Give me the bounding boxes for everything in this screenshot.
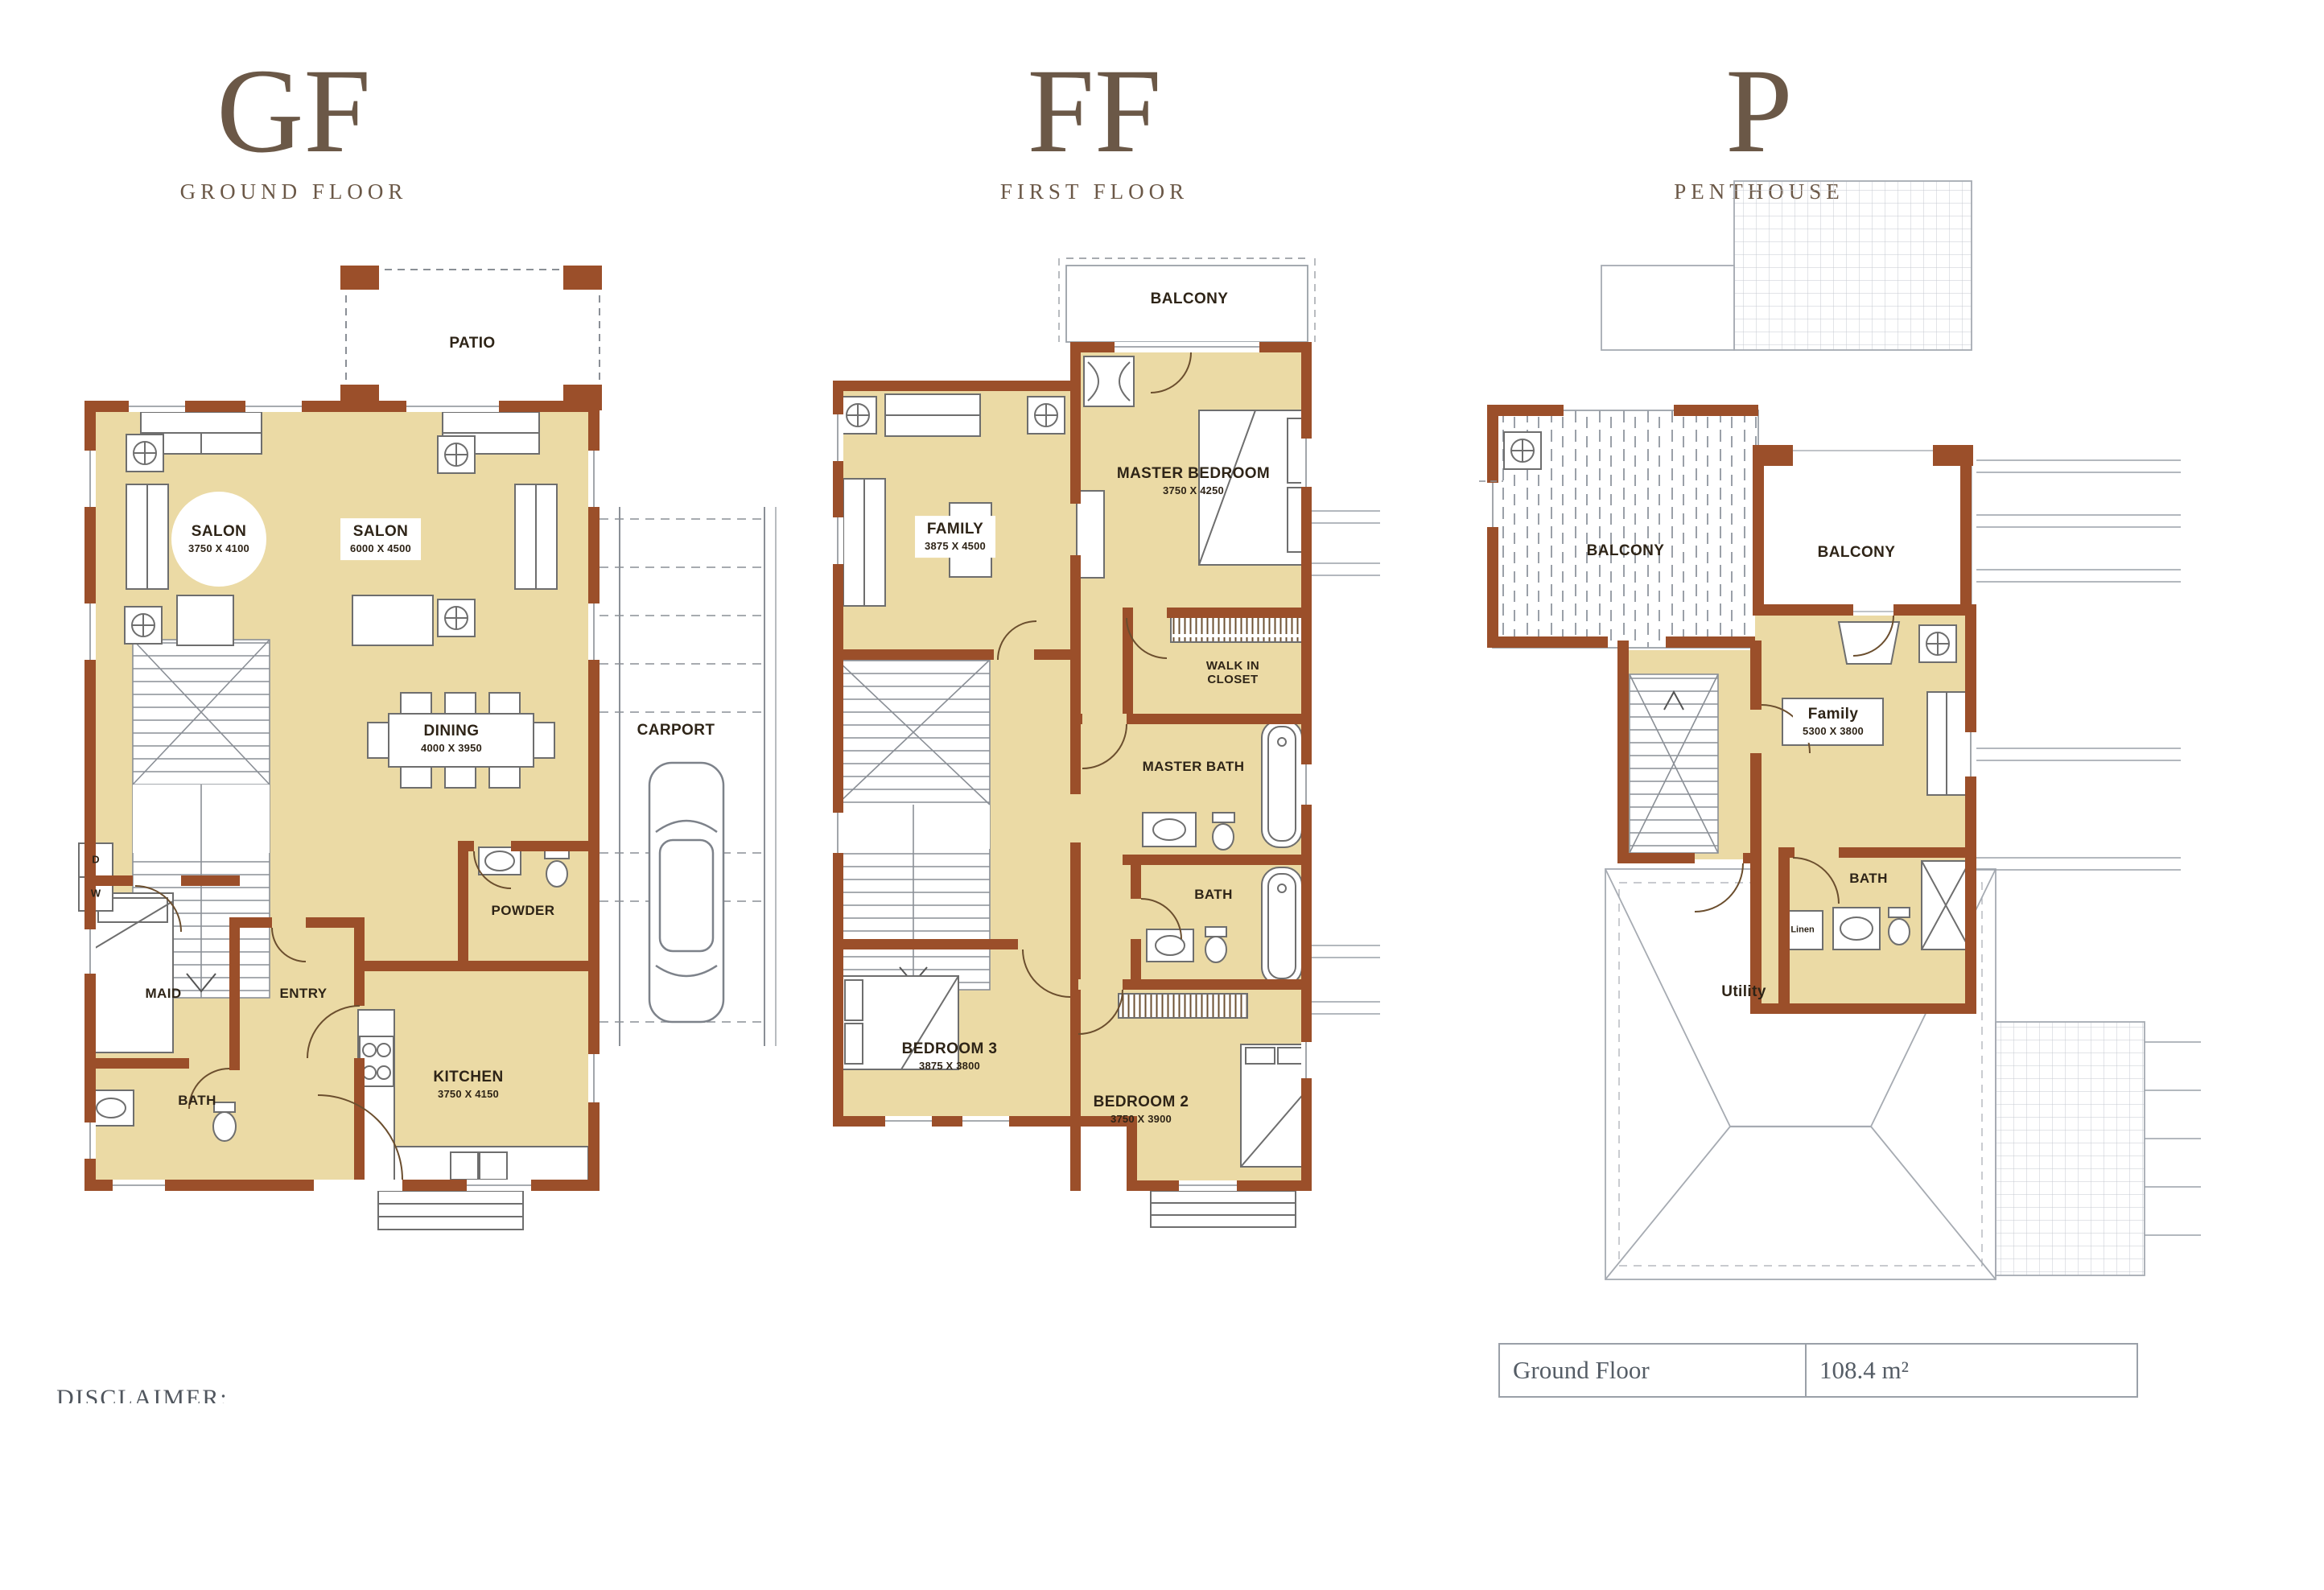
disclaimer-text: DISCLAIMER: [56, 1386, 229, 1403]
ground-floor-plan: PATIO SALON 3750 X 4100 SALON 6000 X 450… [64, 257, 781, 1239]
header-p-abbr: P [1590, 50, 1928, 173]
first-floor-drawing [805, 249, 1416, 1231]
salon-left-dim: 3750 X 4100 [188, 543, 249, 555]
salon-left-name: SALON [192, 523, 247, 541]
room-label-p-balcony-right: BALCONY [1818, 544, 1896, 562]
header-first-floor: FF FIRST FLOOR [925, 50, 1263, 204]
header-gf-caption: GROUND FLOOR [125, 179, 463, 204]
area-table-floor-value: 108.4 m² [1807, 1356, 1909, 1385]
room-label-p-bath: BATH [1849, 871, 1888, 887]
area-table: Ground Floor 108.4 m² [1498, 1343, 2138, 1398]
header-ground-floor: GF GROUND FLOOR [125, 50, 463, 204]
room-label-master-bath: MASTER BATH [1143, 759, 1245, 775]
room-label-bedroom-2: BEDROOM 2 3750 X 3900 [1094, 1094, 1189, 1126]
kitchen-name: KITCHEN [433, 1069, 503, 1085]
bedroom-3-dim: 3875 X 3800 [902, 1061, 998, 1073]
room-label-utility: Utility [1721, 983, 1766, 1001]
p-stairs [1630, 674, 1718, 853]
family-ff-dim: 3875 X 4500 [925, 541, 986, 553]
car-icon [649, 763, 723, 1022]
p-balcony-right-area [1753, 445, 1973, 616]
room-label-linen: Linen [1790, 925, 1814, 936]
dining-dim: 4000 X 3950 [421, 743, 482, 755]
room-label-master-bedroom: MASTER BEDROOM 3750 X 4250 [1117, 465, 1270, 497]
master-bedroom-name: MASTER BEDROOM [1117, 465, 1270, 482]
dining-name: DINING [424, 723, 480, 739]
side-table-icon [126, 435, 163, 472]
family-ff-name: FAMILY [927, 521, 983, 538]
first-floor-plan: BALCONY MASTER BEDROOM 3750 X 4250 FAMIL… [805, 249, 1416, 1231]
header-gf-abbr: GF [125, 50, 463, 173]
bedroom-3-name: BEDROOM 3 [902, 1040, 998, 1057]
salon-right-name: SALON [353, 523, 409, 540]
room-label-ff-balcony: BALCONY [1151, 290, 1229, 308]
room-label-ff-bath: BATH [1194, 887, 1233, 903]
header-ff-caption: FIRST FLOOR [925, 179, 1263, 204]
appliance-label-washer: W [91, 888, 101, 900]
roof-terrace-grid [1996, 1022, 2145, 1275]
side-table-icon [839, 397, 876, 434]
room-label-patio: PATIO [449, 335, 495, 352]
room-label-salon-right: SALON 6000 X 4500 [340, 518, 421, 560]
ff-projection-lines [1312, 511, 1380, 1014]
room-label-maid: MAID [145, 986, 181, 1002]
room-label-carport: CARPORT [637, 722, 715, 739]
upper-roof-panel [1601, 266, 1734, 350]
room-label-p-family: Family 5300 X 3800 [1793, 701, 1873, 743]
floorplan-sheet: { "headers": [ {"abbr": "GF", "caption":… [0, 0, 2324, 1590]
room-label-entry: ENTRY [280, 986, 328, 1002]
room-label-salon-left: SALON 3750 X 4100 [171, 492, 266, 587]
bedroom-2-dim: 3750 X 3900 [1094, 1114, 1189, 1126]
side-table-icon [125, 607, 162, 644]
bedroom-2-name: BEDROOM 2 [1094, 1094, 1189, 1110]
room-label-kitchen: KITCHEN 3750 X 4150 [433, 1069, 503, 1101]
header-ff-abbr: FF [925, 50, 1263, 173]
salon-right-dim: 6000 X 4500 [350, 543, 411, 555]
room-label-powder: POWDER [492, 903, 555, 919]
room-label-bedroom-3: BEDROOM 3 3875 X 3800 [902, 1040, 998, 1073]
area-table-floor-label: Ground Floor [1500, 1345, 1807, 1396]
side-table-icon [1919, 625, 1956, 662]
side-table-icon [1504, 432, 1541, 469]
room-label-family-ff: FAMILY 3875 X 4500 [915, 516, 995, 558]
side-table-icon [1028, 397, 1065, 434]
p-family-dim: 5300 X 3800 [1803, 726, 1864, 738]
room-label-walk-in-closet: WALK IN CLOSET [1191, 659, 1275, 687]
master-bedroom-dim: 3750 X 4250 [1117, 485, 1270, 497]
p-family-name: Family [1808, 706, 1859, 723]
room-label-p-balcony-left: BALCONY [1587, 542, 1665, 560]
kitchen-dim: 3750 X 4150 [433, 1089, 503, 1101]
side-table-icon [438, 436, 475, 473]
room-label-dining: DINING 4000 X 3950 [421, 723, 482, 755]
penthouse-plan: BALCONY BALCONY Family 5300 X 3800 BATH … [1473, 177, 2229, 1320]
appliance-label-dryer: D [92, 855, 99, 867]
penthouse-drawing [1473, 177, 2229, 1320]
side-table-icon [438, 599, 475, 636]
room-label-gf-bath: BATH [178, 1093, 216, 1109]
upper-roof-grid [1734, 181, 1972, 350]
